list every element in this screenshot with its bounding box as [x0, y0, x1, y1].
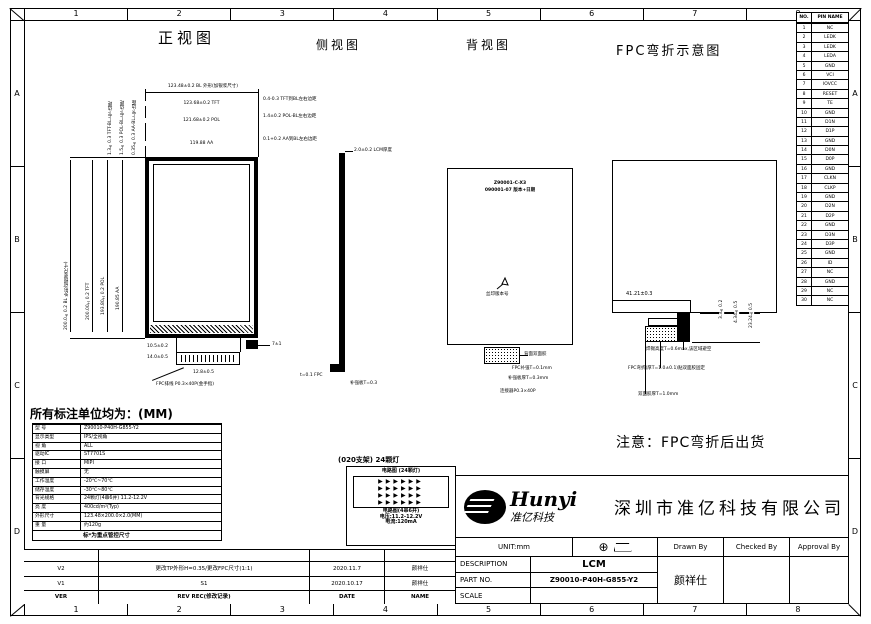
spec-value: MIPI [81, 460, 221, 468]
led-line-3: 电流:120mA [351, 520, 451, 526]
scale-label: SCALE [456, 588, 531, 603]
zone-number: 5 [437, 8, 540, 20]
zone-band-right: ABCD [849, 20, 861, 604]
pin-name-header: PIN NAME [812, 13, 848, 22]
revision-empty-row [24, 550, 455, 561]
revision-row: V1 S1 2020.10.17 颜祥仕 [24, 576, 455, 591]
back-callout-4: 连接器P0.3×40P [500, 389, 536, 394]
pin-number: 6 [797, 71, 812, 79]
dim-right-aa: 0.1+0.2 AA到BL左右边距 [263, 137, 317, 142]
spec-value: 约120g [81, 522, 221, 530]
zone-number: 1 [24, 8, 127, 20]
zone-letter: D [10, 458, 24, 604]
spec-rows: 型 号 Z90010-P40H-G855-Y2 显示类型 IPS/全视角 视 角… [33, 424, 221, 530]
dim-bottom-3: 12.8±0.5 [193, 370, 214, 375]
spec-label: 触摸屏 [33, 469, 81, 477]
spec-table: 型 号 Z90010-P40H-G855-Y2 显示类型 IPS/全视角 视 角… [32, 423, 222, 541]
checked-name-cell [724, 557, 790, 603]
pin-row: 12 D1P [797, 126, 848, 135]
dim-bottom-1: 10.5±0.2 [147, 344, 168, 349]
revision-header-name: NAME [385, 591, 455, 604]
part-no-value: Z90010-P40H-G855-Y2 [531, 573, 657, 588]
zone-number: 7 [643, 8, 746, 20]
spec-note: 标*为重点管控尺寸 [33, 530, 221, 540]
approval-name-cell [790, 557, 848, 603]
pin-row: 3 LEDK [797, 42, 848, 51]
shipping-note: 注意：FPC弯折后出货 [616, 432, 765, 452]
spec-value: Z90010-P40H-G855-Y2 [81, 425, 221, 433]
spec-label: 亮 度 [33, 504, 81, 512]
fpc-connector [176, 352, 240, 365]
pin-name: D2P [812, 212, 848, 220]
revision-desc: S1 [99, 577, 310, 591]
pin-name: GND [812, 221, 848, 229]
pin-name: LEDA [812, 52, 848, 60]
front-view-title: 正视图 [158, 27, 215, 48]
description-label: DESCRIPTION [456, 557, 531, 572]
dim-left-aa: 190.85 AA [116, 190, 121, 310]
pin-row: 21 D2P [797, 211, 848, 220]
pin-number: 9 [797, 99, 812, 107]
dim-left-bl: 200.0±0.2 BL 外形(加银浆尺寸) [64, 170, 69, 330]
fpc-dim-v3: 23.24±0.5 [749, 272, 754, 328]
revision-header-desc: REV REC(修改记录) [99, 591, 310, 604]
pin-number: 8 [797, 90, 812, 98]
spec-row: 工作温度 -20℃~70℃ [33, 477, 221, 486]
connector-block [677, 313, 690, 342]
zone-letter: C [10, 312, 24, 458]
pin-row: 23 D3N [797, 230, 848, 239]
pin-row: 15 D0P [797, 154, 848, 163]
foam-tape-block [645, 326, 679, 342]
dim-right-pol: 1.4±0.2 POL-BL左右边距 [263, 114, 316, 119]
pin-number: 16 [797, 165, 812, 173]
fpc-callout-3: 双面胶厚T=1.0mm [638, 392, 678, 397]
revision-rows: V2 更改TP外形H=0.35/更改FPC尺寸(1:1) 2020.11.7 颜… [24, 561, 455, 590]
led-diode-row: ▶▶▶▶▶▶ [354, 485, 448, 492]
dim-bottom-2: 14.0±0.5 [147, 355, 168, 360]
pin-name: IOVCC [812, 80, 848, 88]
dim-topleft-2: 1.5±0.3 POL-BL上下边距 [120, 55, 125, 155]
revision-table: V2 更改TP外形H=0.35/更改FPC尺寸(1:1) 2020.11.7 颜… [24, 549, 455, 604]
pin-number: 1 [797, 24, 812, 32]
zone-letter: A [10, 20, 24, 166]
projection-circle-icon: ⊕ [598, 540, 608, 554]
pin-name: GND [812, 165, 848, 173]
pin-number: 26 [797, 259, 812, 267]
dim-aa-width: 119.88 AA [145, 141, 258, 146]
pin-name: CLKP [812, 184, 848, 192]
lcm-thickness-label: 2.0±0.2 LCM厚度 [354, 148, 392, 153]
pin-row: 8 RESET [797, 89, 848, 98]
spec-value: IPS/全视角 [81, 434, 221, 442]
spec-label: 工作温度 [33, 478, 81, 486]
unit-label: UNIT:mm [456, 538, 573, 556]
spec-value: 24颗灯(4串6并) 11.2-12.2V [81, 495, 221, 503]
side-callout-2: 补强板T=0.3 [350, 381, 377, 386]
led-diode-row: ▶▶▶▶▶▶ [354, 478, 448, 485]
spec-row: 接 口 MIPI [33, 459, 221, 468]
spec-row: 储存温度 -30℃~80℃ [33, 486, 221, 495]
pin-number: 5 [797, 62, 812, 70]
pin-no-header: NO. [797, 13, 812, 22]
pin-row: 2 LEDK [797, 32, 848, 41]
pin-row: 28 GND [797, 277, 848, 286]
spec-row: 背光规格 24颗灯(4串6并) 11.2-12.2V [33, 494, 221, 503]
pin-row: 22 GND [797, 220, 848, 229]
revision-name: 颜祥仕 [385, 562, 455, 576]
pin-name: LEDK [812, 43, 848, 51]
zone-band-bottom: 12345678 [24, 604, 849, 616]
revision-row: V2 更改TP外形H=0.35/更改FPC尺寸(1:1) 2020.11.7 颜… [24, 561, 455, 576]
pin-number: 13 [797, 137, 812, 145]
zone-letter: B [10, 166, 24, 312]
spec-row: 型 号 Z90010-P40H-G855-Y2 [33, 424, 221, 433]
spec-row: 显示类型 IPS/全视角 [33, 433, 221, 442]
back-callout-1: 背面双面胶 [524, 352, 547, 357]
pin-row: 7 IOVCC [797, 79, 848, 88]
title-block-header-row: UNIT:mm ⊕ Drawn By Checked By Approval B… [456, 538, 848, 557]
pin-row: 16 GND [797, 164, 848, 173]
silk-arrow-icon [495, 276, 509, 290]
revision-ver: V2 [24, 562, 99, 576]
zone-number: 8 [746, 604, 849, 616]
pin-row: 10 GND [797, 108, 848, 117]
spec-row: 触摸屏 无 [33, 468, 221, 477]
spec-row: 亮 度 400cd/m²(Typ) [33, 503, 221, 512]
spec-value: 123.48×200.0×2.0(MM) [81, 513, 221, 521]
pin-row: 4 LEDA [797, 51, 848, 60]
zone-number: 6 [540, 604, 643, 616]
zone-letter: D [849, 458, 861, 604]
dim-bottom-4: 7±1 [272, 342, 282, 347]
folded-fpc [648, 318, 678, 326]
zone-number: 1 [24, 604, 127, 616]
pin-number: 28 [797, 278, 812, 286]
fpc-dim-width: 41.21±0.3 [626, 292, 652, 298]
pin-row: 11 D1N [797, 117, 848, 126]
revision-header-row: VER REV REC(修改记录) DATE NAME [24, 590, 455, 604]
pin-name: GND [812, 193, 848, 201]
pin-number: 15 [797, 155, 812, 163]
pin-number: 11 [797, 118, 812, 126]
pin-name: D2N [812, 202, 848, 210]
spec-value: -30℃~80℃ [81, 487, 221, 495]
spec-label: 重 量 [33, 522, 81, 530]
fpc-dim-v2: 4.34±0.5 [734, 277, 739, 323]
pin-row: 29 NC [797, 286, 848, 295]
pin-name: D1N [812, 118, 848, 126]
zone-band-left: ABCD [10, 20, 24, 604]
silk-print-line2: 090001-07 版本+日期 [447, 188, 573, 193]
pin-number: 19 [797, 193, 812, 201]
back-callout-2: FPC补强T=0.1mm [512, 366, 552, 371]
revision-date: 2020.11.7 [310, 562, 385, 576]
spec-label: 外形尺寸 [33, 513, 81, 521]
pin-table: NO. PIN NAME 1 NC 2 LEDK 3 LEDK [796, 12, 849, 306]
silk-print-line1: Z90001-C-X3 [447, 181, 573, 186]
title-block-logo-row: Hunyi 准亿科技 深圳市准亿科技有限公司 [456, 476, 848, 538]
pin-name: D0N [812, 146, 848, 154]
zone-number: 6 [540, 8, 643, 20]
pin-row: 26 ID [797, 258, 848, 267]
pin-row: 13 GND [797, 136, 848, 145]
pin-row: 30 NC [797, 295, 848, 304]
pin-name: D3P [812, 240, 848, 248]
pin-number: 24 [797, 240, 812, 248]
spec-label: 驱动IC [33, 451, 81, 459]
pin-name: D3N [812, 231, 848, 239]
pin-name: NC [812, 24, 848, 32]
led-diode-row: ▶▶▶▶▶▶ [354, 492, 448, 499]
fpc-cable-label: FPC排线 P0.3×40P(金手指) [156, 382, 214, 387]
side-profile-bar [339, 153, 345, 365]
led-circuit-box: 电路图 (24颗灯) ▶▶▶▶▶▶▶▶▶▶▶▶▶▶▶▶▶▶▶▶▶▶▶▶ 电路图(… [346, 466, 456, 546]
pin-row: 6 VCI [797, 70, 848, 79]
pin-number: 29 [797, 287, 812, 295]
pin-number: 23 [797, 231, 812, 239]
revision-date: 2020.10.17 [310, 577, 385, 591]
spec-label: 显示类型 [33, 434, 81, 442]
back-outline [447, 168, 573, 345]
pin-name: GND [812, 109, 848, 117]
spec-row: 驱动IC ST7701S [33, 450, 221, 459]
pin-name: VCI [812, 71, 848, 79]
zone-number: 7 [643, 604, 746, 616]
pin-number: 30 [797, 296, 812, 304]
pin-row: 18 CLKP [797, 183, 848, 192]
zone-letter: C [849, 312, 861, 458]
logo-text: Hunyi [510, 489, 577, 509]
led-box-title: (020支架) 24颗灯 [338, 455, 399, 465]
revision-ver: V1 [24, 577, 99, 591]
part-no-label: PART NO. [456, 573, 531, 588]
spec-value: 400cd/m²(Typ) [81, 504, 221, 512]
dim-left-tft: 200.00±0.2 TFT [86, 180, 91, 320]
pin-rows: 1 NC 2 LEDK 3 LEDK 4 LEDA [797, 23, 848, 305]
pin-row: 25 GND [797, 248, 848, 257]
pin-number: 20 [797, 202, 812, 210]
zone-number: 3 [230, 8, 333, 20]
projection-trapezoid-icon [614, 543, 632, 552]
side-profile-foot [330, 364, 345, 372]
dim-topleft-3: 0.35±0.3 AA-BL上下边距 [132, 55, 137, 155]
drawn-name: 颜祥仕 [658, 557, 724, 603]
pin-name: RESET [812, 90, 848, 98]
dim-pol-width: 121.68±0.2 POL [145, 118, 258, 123]
pin-number: 12 [797, 127, 812, 135]
pin-number: 14 [797, 146, 812, 154]
fpc-view-title: FPC弯折示意图 [616, 40, 721, 59]
pin-name: D0P [812, 155, 848, 163]
pin-number: 2 [797, 33, 812, 41]
zone-number: 2 [127, 604, 230, 616]
fpc-callout-2: FPC弯折(厚T=1.0±0.1)贴双面胶固定 [628, 366, 728, 371]
led-diode-row: ▶▶▶▶▶▶ [354, 499, 448, 506]
logo-subtext: 准亿科技 [510, 509, 577, 525]
checked-by-label: Checked By [724, 538, 790, 556]
hunyi-logo-icon [464, 490, 506, 524]
silk-arrow-label: 丝印版本号 [486, 292, 509, 297]
dim-topleft-1: 1.3±0.3 TFT-BL上下边距 [108, 55, 113, 155]
spec-value: ST7701S [81, 451, 221, 459]
pin-name: NC [812, 296, 848, 304]
dim-left-pol: 193.80±0.2 POL [101, 185, 106, 315]
side-view-title: 侧视图 [316, 36, 361, 53]
led-diode-grid: ▶▶▶▶▶▶▶▶▶▶▶▶▶▶▶▶▶▶▶▶▶▶▶▶ [353, 476, 449, 508]
pin-name: LEDK [812, 33, 848, 41]
pin-row: 19 GND [797, 192, 848, 201]
fpc-dim-v1: 3.3±0.2 [719, 281, 724, 319]
spec-value: ALL [81, 443, 221, 451]
pin-name: GND [812, 249, 848, 257]
pin-number: 7 [797, 80, 812, 88]
pin-row: 24 D3P [797, 239, 848, 248]
pin-number: 17 [797, 174, 812, 182]
pin-row: 20 D2N [797, 201, 848, 210]
approval-by-label: Approval By [790, 538, 848, 556]
pin-row: 17 CLKN [797, 173, 848, 182]
pin-name: GND [812, 137, 848, 145]
pin-number: 27 [797, 268, 812, 276]
zone-letter: A [849, 20, 861, 166]
back-callout-3: 补强板厚T=0.3mm [508, 376, 548, 381]
zone-number: 2 [127, 8, 230, 20]
back-view-title: 背视图 [466, 36, 511, 53]
spec-label: 储存温度 [33, 487, 81, 495]
spec-label: 背光规格 [33, 495, 81, 503]
pin-number: 4 [797, 52, 812, 60]
back-fpc-block [484, 347, 520, 364]
drawing-sheet: 12345678 12345678 ABCD ABCD 正视图 侧视图 背视图 … [0, 0, 871, 624]
drawn-by-label: Drawn By [658, 538, 724, 556]
revision-header-date: DATE [310, 591, 385, 604]
dim-tft-width: 123.68±0.2 TFT [145, 101, 258, 106]
spec-row: 外形尺寸 123.48×200.0×2.0(MM) [33, 512, 221, 521]
pin-row: 1 NC [797, 23, 848, 32]
pin-number: 18 [797, 184, 812, 192]
spec-row: 视 角 ALL [33, 442, 221, 451]
spec-label: 型 号 [33, 425, 81, 433]
active-area-outline [153, 164, 250, 322]
pin-number: 21 [797, 212, 812, 220]
pin-name: D1P [812, 127, 848, 135]
pin-name: NC [812, 268, 848, 276]
revision-desc: 更改TP外形H=0.35/更改FPC尺寸(1:1) [99, 562, 310, 576]
scale-value [531, 588, 657, 603]
led-inner-title: 电路图 (24颗灯) [351, 469, 451, 475]
pin-number: 3 [797, 43, 812, 51]
revision-name: 颜祥仕 [385, 577, 455, 591]
pin-row: 5 GND [797, 61, 848, 70]
pin-table-header: NO. PIN NAME [797, 13, 848, 23]
pin-number: 22 [797, 221, 812, 229]
spec-row: 重 量 约120g [33, 521, 221, 530]
revision-header-ver: VER [24, 591, 99, 604]
pin-row: 27 NC [797, 267, 848, 276]
silver-paste-strip [150, 325, 253, 333]
zone-letter: B [849, 166, 861, 312]
spec-label: 接 口 [33, 460, 81, 468]
pin-number: 10 [797, 109, 812, 117]
zone-number: 5 [437, 604, 540, 616]
zone-number: 3 [230, 604, 333, 616]
spec-value: 无 [81, 469, 221, 477]
zone-band-top: 12345678 [24, 8, 849, 20]
units-heading: 所有标注单位均为：(MM) [30, 405, 173, 422]
zone-number: 4 [333, 8, 436, 20]
pin-name: ID [812, 259, 848, 267]
pin-number: 25 [797, 249, 812, 257]
title-block: Hunyi 准亿科技 深圳市准亿科技有限公司 UNIT:mm ⊕ Drawn B… [455, 475, 849, 604]
pin-name: CLKN [812, 174, 848, 182]
pin-name: GND [812, 62, 848, 70]
pin-name: GND [812, 278, 848, 286]
zone-number: 4 [333, 604, 436, 616]
dim-right-tft: 0.4-0.3 TFT到BL左右边距 [263, 97, 316, 102]
pin-row: 9 TE [797, 98, 848, 107]
pin-row: 14 D0N [797, 145, 848, 154]
fpc-callout-1: 焊锡高度T=0.6max,该区域避空 [646, 347, 730, 352]
spec-value: -20℃~70℃ [81, 478, 221, 486]
dim-bl-width: 123.48±0.2 BL 外形(加银浆尺寸) [138, 84, 268, 89]
pin-name: TE [812, 99, 848, 107]
description-value: LCM [531, 557, 657, 572]
fpc-stiffener-block [246, 340, 258, 349]
spec-label: 视 角 [33, 443, 81, 451]
company-name: 深圳市准亿科技有限公司 [611, 476, 848, 537]
pin-name: NC [812, 287, 848, 295]
side-callout-1: t=0.1 FPC [300, 373, 323, 378]
